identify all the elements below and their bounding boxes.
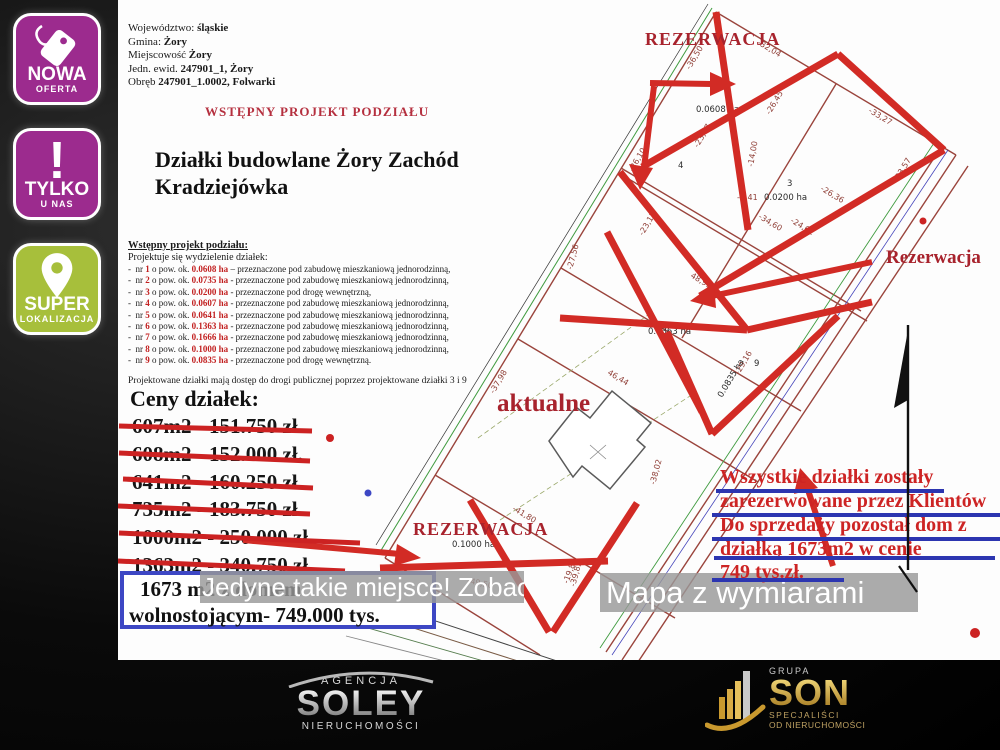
final-offer-line2: wolnostojącym- 749.000 tys. [124, 602, 432, 628]
soley-name: SOLEY [283, 687, 439, 721]
flyer-root: NOWA OFERTA ! TYLKO U NAS SUPER LOKALIZA… [0, 0, 1000, 750]
soley-arc-icon [285, 668, 437, 688]
badge-subtitle: U NAS [40, 199, 73, 210]
son-logo: GRUPA SON SPECJALIŚCI OD NIERUCHOMOŚCI [705, 663, 895, 747]
badge-subtitle: OFERTA [36, 84, 78, 95]
badge-tylko-u-nas: ! TYLKO U NAS [13, 128, 101, 220]
red-annotations [118, 0, 1000, 660]
soley-nieruchomosci-label: NIERUCHOMOŚCI [283, 721, 439, 732]
reserved-note-line: Do sprzedaży pozostał dom z [720, 514, 967, 537]
badge-subtitle: LOKALIZACJA [20, 314, 95, 325]
location-pin-icon [16, 252, 98, 302]
soley-logo: AGENCJA SOLEY NIERUCHOMOŚCI [283, 666, 439, 746]
son-od-nieruchomosci-label: OD NIERUCHOMOŚCI [769, 720, 865, 730]
price-tag-icon [16, 22, 98, 74]
son-building-icon [705, 663, 767, 741]
banner-left: Jedyne takie miejsce! Zobacz! [200, 571, 524, 603]
map-label-rezerwacja-bottom: REZERWACJA [413, 519, 548, 540]
blue-underline [712, 537, 1000, 541]
badge-nowa-oferta: NOWA OFERTA [13, 13, 101, 105]
blue-underline [716, 489, 944, 493]
map-label-rezerwacja-right: Rezerwacja [886, 247, 981, 269]
reserved-note-line: Wszystkie działki zostały [720, 466, 933, 489]
reserved-note-line: zarezerwowane przez Klientów [720, 490, 986, 513]
map-label-rezerwacja-top: REZERWACJA [645, 29, 780, 50]
blue-underline [712, 513, 1000, 517]
content-panel: -36,50-32,04-33,27-26,45-23,07-26,10-23,… [118, 0, 1000, 660]
blue-underline [712, 578, 844, 582]
badge-super-lokalizacja: SUPER LOKALIZACJA [13, 243, 101, 335]
son-specjalisci-label: SPECJALIŚCI [769, 710, 865, 720]
exclamation-icon: ! [16, 137, 98, 185]
blue-underline [714, 556, 995, 560]
badge-rail: NOWA OFERTA ! TYLKO U NAS SUPER LOKALIZA… [0, 0, 118, 750]
son-name: SON [769, 676, 865, 710]
map-label-aktualne: aktualne [497, 390, 590, 418]
